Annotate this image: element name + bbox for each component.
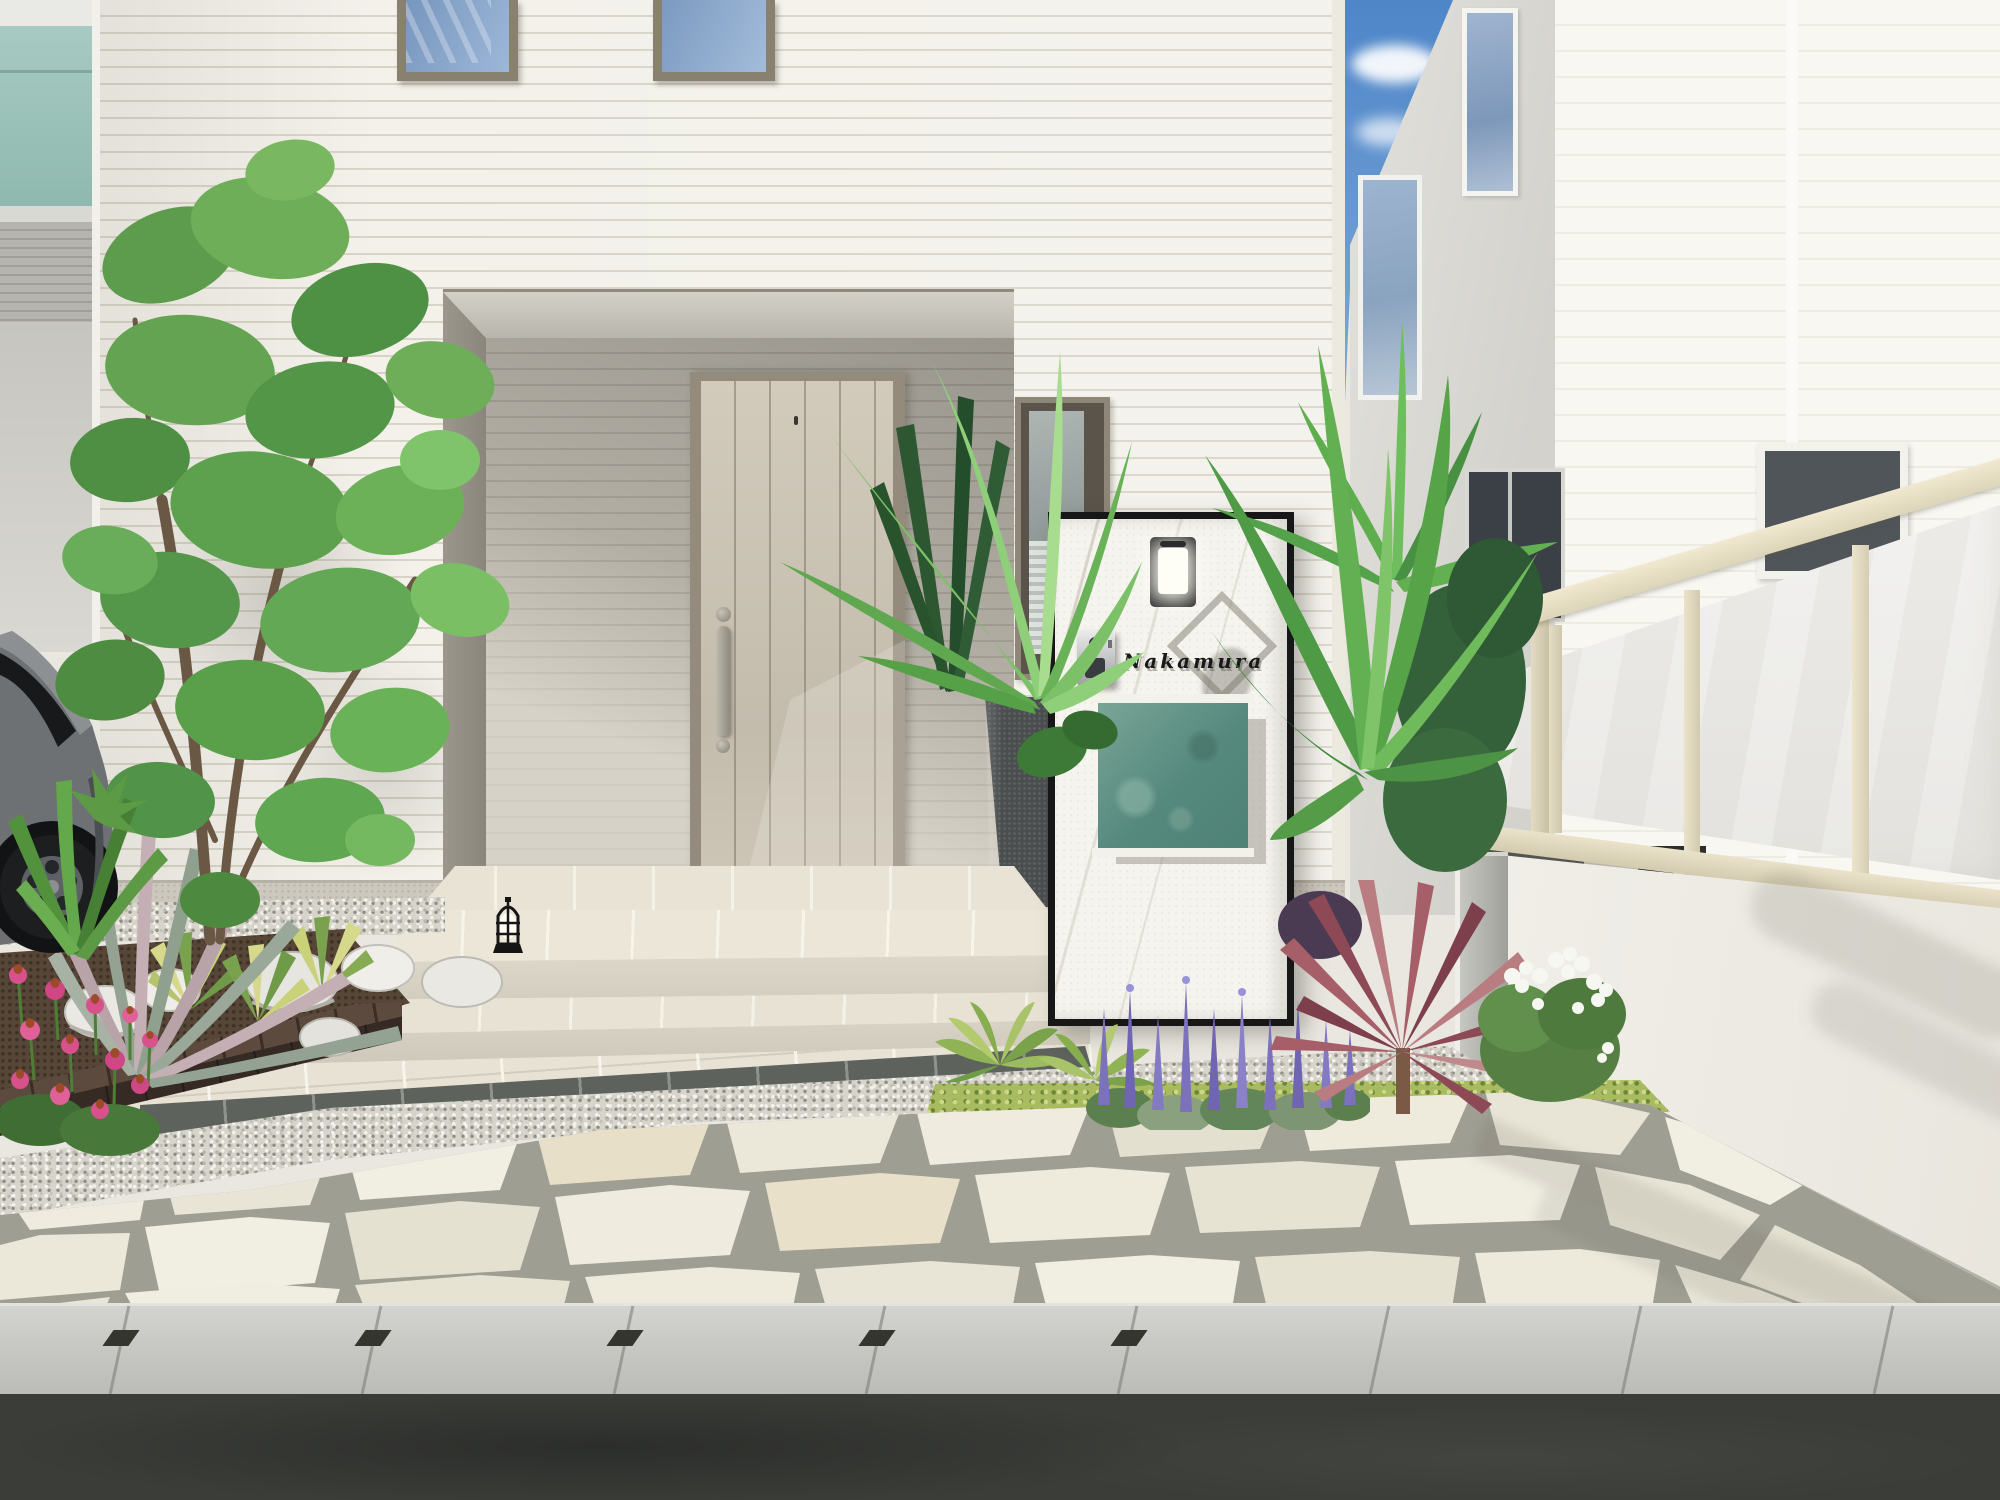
fern xyxy=(0,760,190,960)
hosta-rosette-1 xyxy=(935,1002,1065,1082)
white-flower-bush xyxy=(1460,930,1640,1110)
upper-window-right xyxy=(653,0,775,81)
neighbor-window-upper xyxy=(1462,8,1518,196)
palm-right xyxy=(1150,280,1600,980)
monstera-leaves xyxy=(1010,706,1121,780)
upper-window-left-streak xyxy=(406,0,491,63)
left-building-teal-band-line xyxy=(0,70,104,73)
cordyline-trunk xyxy=(1396,1048,1410,1114)
left-building-roof-edge xyxy=(0,0,104,26)
curb xyxy=(0,1303,2000,1399)
big-lobed-leaf xyxy=(70,768,148,834)
fence-stile-2 xyxy=(1684,590,1700,854)
rendering-canvas: Nakamura xyxy=(0,0,2000,1500)
road xyxy=(0,1394,2000,1500)
fence-stile-3 xyxy=(1852,545,1869,875)
palm-left xyxy=(700,300,1160,780)
